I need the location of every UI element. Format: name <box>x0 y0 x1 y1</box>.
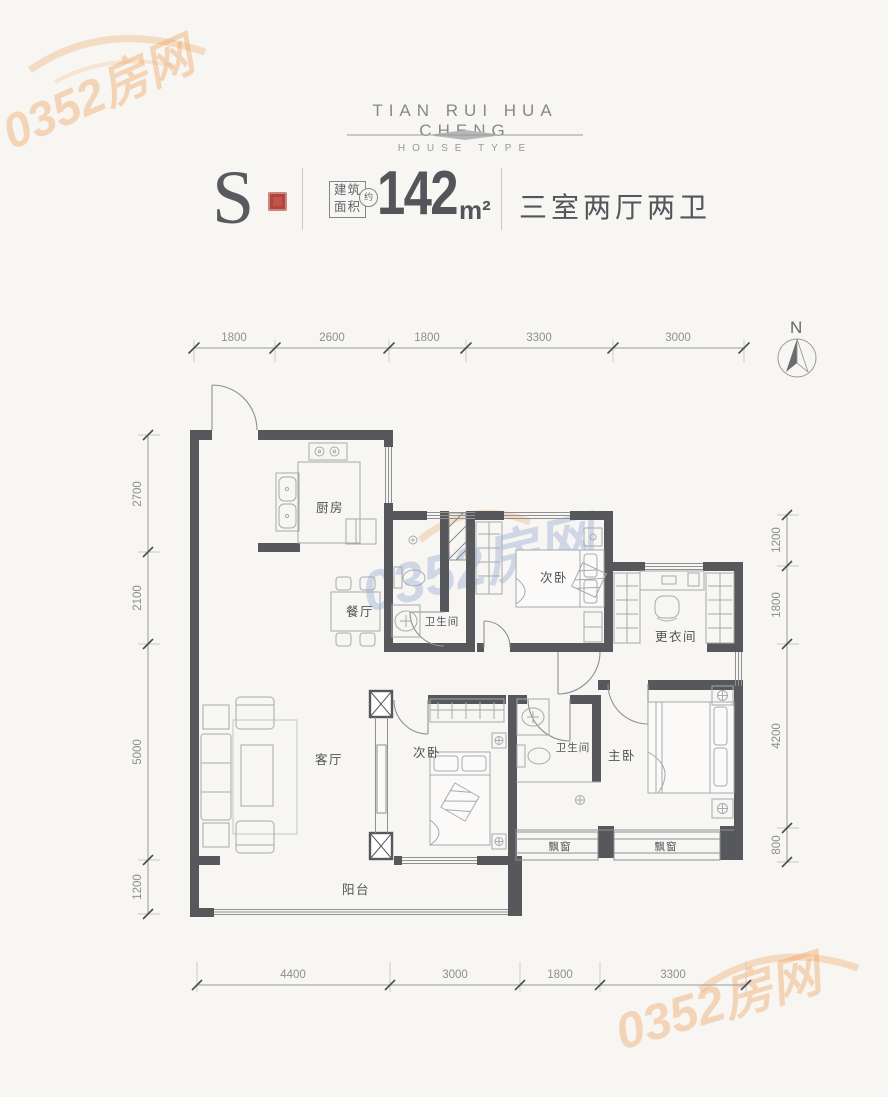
dim-label: 1800 <box>547 969 573 981</box>
room-label-dressing: 更衣间 <box>655 629 697 644</box>
shaft-column-top <box>370 691 392 717</box>
header-ornament <box>347 128 583 142</box>
dim-label: 800 <box>771 835 783 854</box>
dim-label: 1200 <box>771 527 783 553</box>
bedroom2-door <box>484 621 510 647</box>
bedroom2-bottom-furniture <box>430 699 506 849</box>
master-furniture <box>648 686 734 818</box>
dim-label: 2100 <box>132 585 144 611</box>
dim-label: 3000 <box>442 969 468 981</box>
unit-type-letter: S <box>212 160 254 236</box>
room-label-kitchen: 厨房 <box>316 500 344 515</box>
layout-description: 三室两厅两卫 <box>519 186 711 226</box>
room-label-dining: 餐厅 <box>346 604 374 619</box>
compass-needle-dark <box>786 339 797 372</box>
dimensions-bottom: 4400 3000 1800 3300 <box>192 962 751 992</box>
dim-label: 3000 <box>665 332 691 344</box>
room-label-bath1: 卫生间 <box>425 615 460 628</box>
north-compass: N <box>778 318 816 377</box>
seal-icon <box>268 192 287 211</box>
hall-door <box>558 652 600 694</box>
area-value: 142 <box>377 163 457 225</box>
room-label-master: 主卧 <box>608 749 636 763</box>
room-label-bay-left: 飘窗 <box>549 840 572 853</box>
kitchen-furniture <box>276 443 376 544</box>
dimensions-right: 1200 1800 4200 800 <box>771 510 799 867</box>
watermark-bottom-right: 0352房网 <box>609 943 858 1060</box>
balcony-glazing <box>214 910 508 915</box>
dim-label: 1800 <box>414 332 440 344</box>
dim-label: 2600 <box>319 332 345 344</box>
dim-label: 3300 <box>660 969 686 981</box>
living-bedroom-partition <box>376 717 388 833</box>
dim-label: 4200 <box>771 723 783 749</box>
living-furniture <box>201 697 297 853</box>
dim-label: 3300 <box>526 332 552 344</box>
header-subtitle: HOUSE TYPE <box>324 143 606 154</box>
watermark-text: 0352房网 <box>0 26 208 160</box>
dim-label: 5000 <box>132 739 144 765</box>
kitchen-window <box>386 447 392 503</box>
dim-label: 1800 <box>221 332 247 344</box>
approx-badge: 约 <box>359 188 378 207</box>
dressing-window <box>645 564 703 570</box>
compass-needle-light <box>797 339 808 372</box>
divider <box>302 168 303 230</box>
shaft-column-bottom <box>370 833 392 859</box>
room-label-bay-right: 飘窗 <box>655 840 678 853</box>
north-label: N <box>790 318 802 337</box>
watermark-top-left: 0352房网 <box>0 26 208 160</box>
room-label-bedroom2-bottom: 次卧 <box>413 746 441 760</box>
bedroom3-window <box>402 858 477 864</box>
dim-label: 1200 <box>132 874 144 900</box>
room-label-bath2: 卫生间 <box>556 741 591 754</box>
dim-label: 2700 <box>132 481 144 507</box>
master-door <box>608 684 648 724</box>
dimensions-left: 2700 2100 5000 1200 <box>132 430 160 919</box>
floorplan-page: { "header": { "brand": "TIAN RUI HUA CHE… <box>0 0 888 1097</box>
area-unit: m² <box>459 195 491 226</box>
dim-label: 1800 <box>771 592 783 618</box>
dimensions-top: 1800 2600 1800 3300 3000 <box>189 332 749 362</box>
watermark-text: 0352房网 <box>609 943 834 1060</box>
room-label-living: 客厅 <box>315 752 343 767</box>
dim-label: 4400 <box>280 969 306 981</box>
bedroom3-door <box>394 700 428 734</box>
room-label-bedroom2-top: 次卧 <box>540 571 568 585</box>
entry-door <box>212 385 257 430</box>
divider <box>501 168 502 230</box>
room-label-balcony: 阳台 <box>342 882 370 897</box>
